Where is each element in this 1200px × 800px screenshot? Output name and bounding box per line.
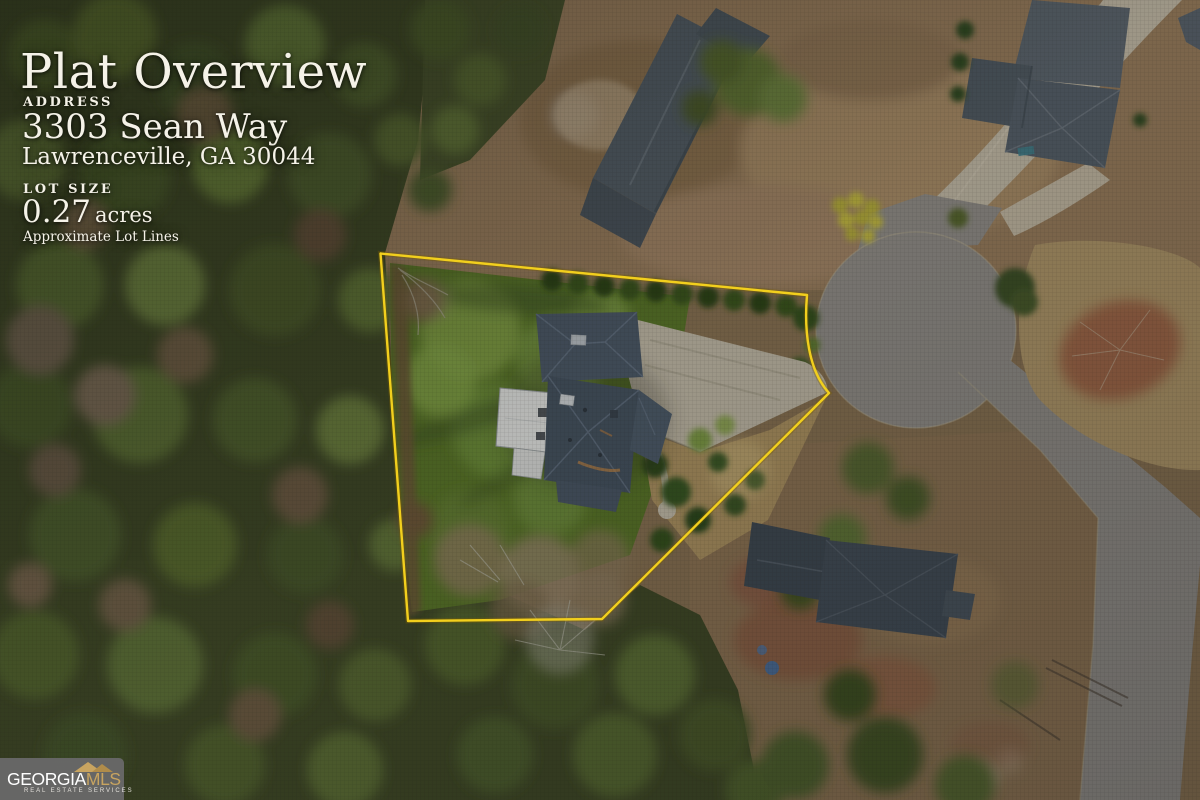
photo-dim-overlay	[0, 0, 1200, 800]
brand-secondary: MLS	[86, 769, 121, 789]
brand-text: GEORGIAMLS	[7, 769, 121, 790]
plat-overview-page: Plat Overview ADDRESS 3303 Sean Way Lawr…	[0, 0, 1200, 800]
brand-logo: GEORGIAMLS REAL ESTATE SERVICES	[0, 758, 124, 800]
brand-tagline: REAL ESTATE SERVICES	[24, 788, 133, 794]
aerial-photo	[0, 0, 1200, 800]
brand-primary: GEORGIA	[7, 769, 86, 789]
